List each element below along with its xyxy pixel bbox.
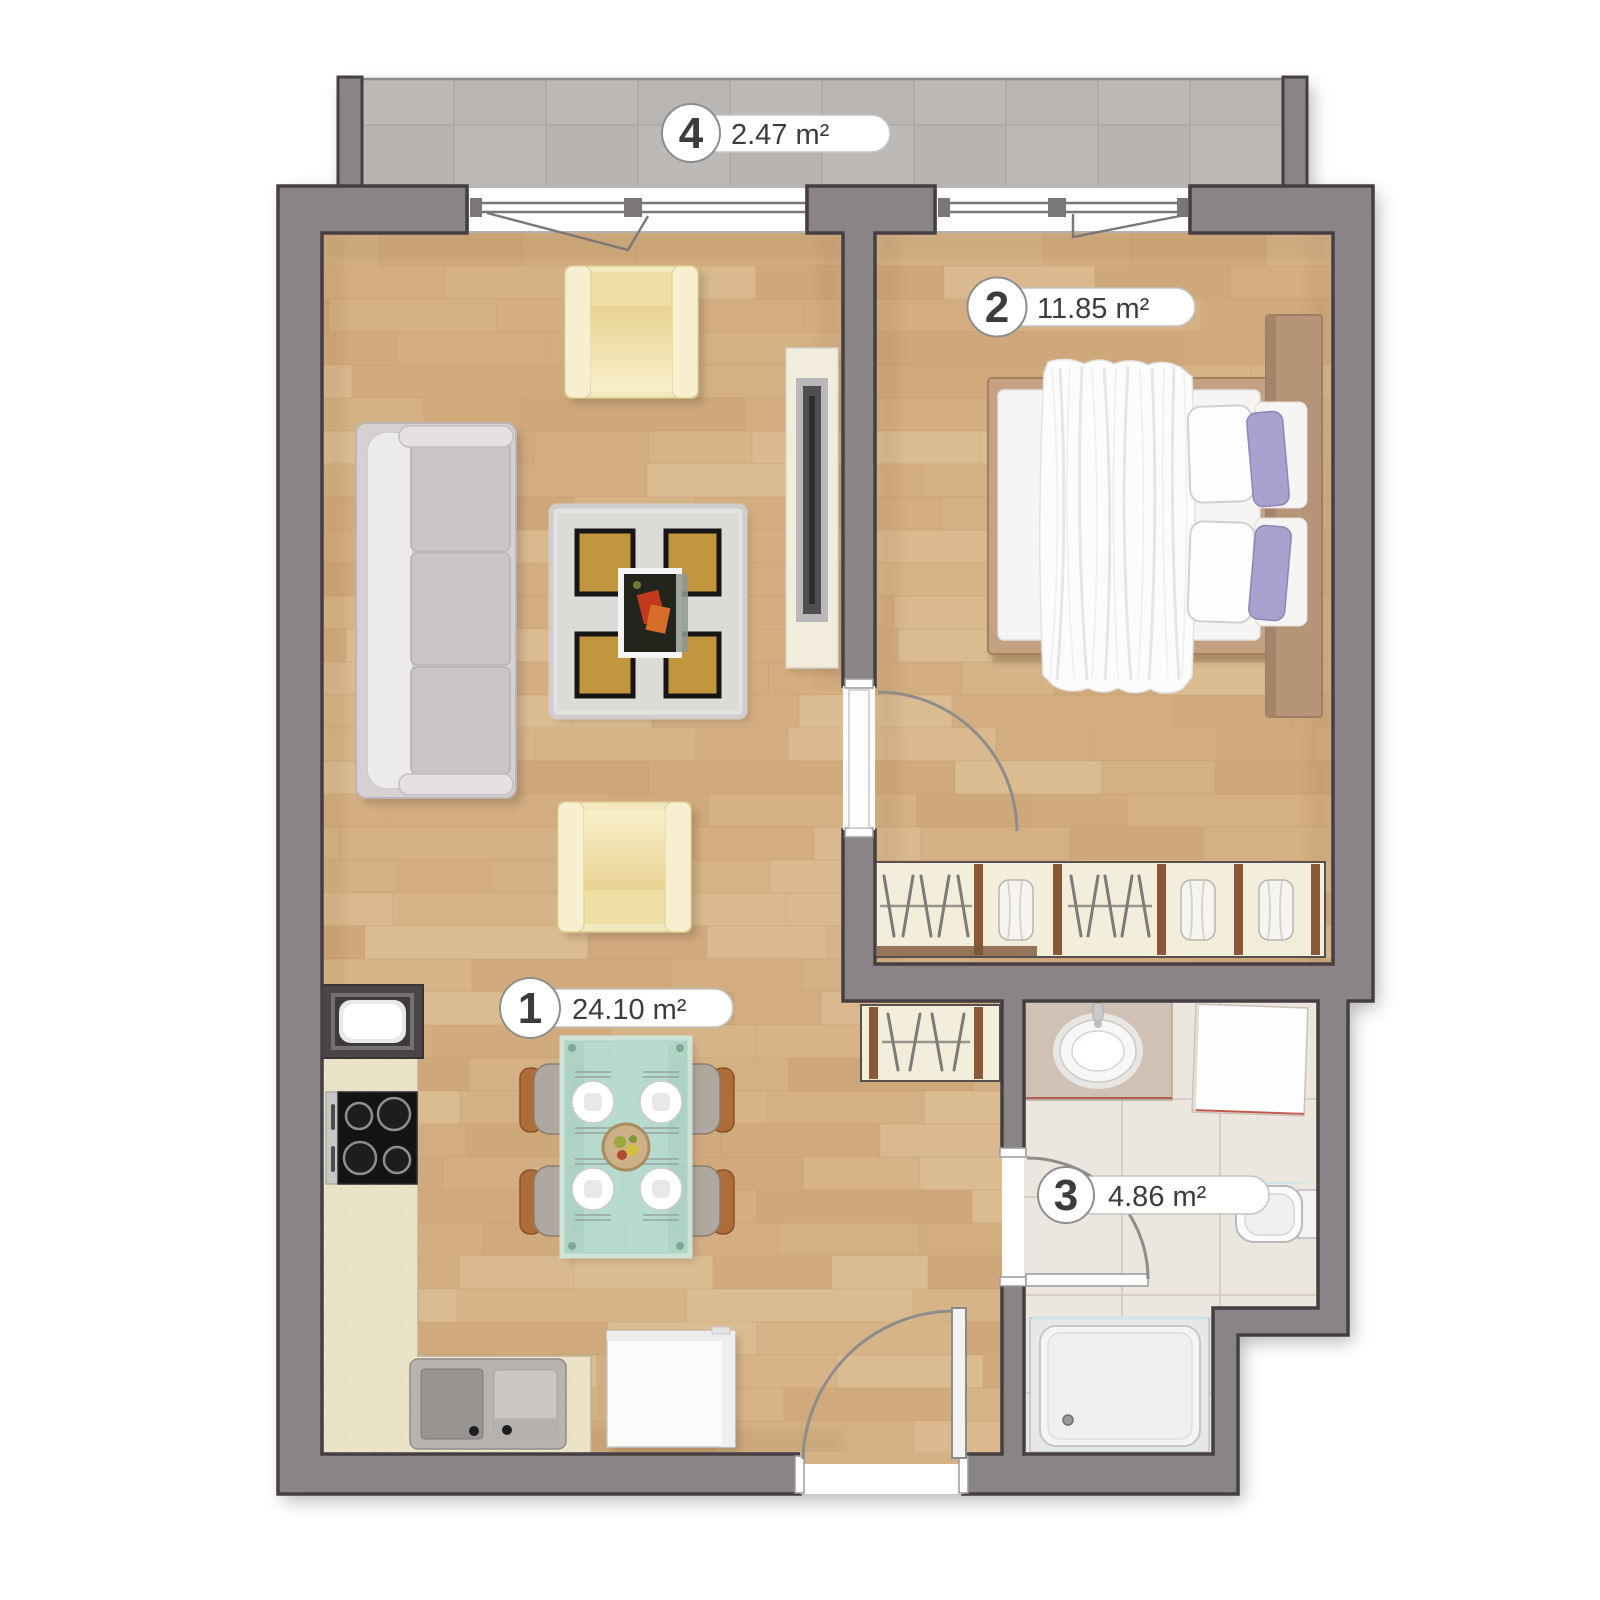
svg-text:11.85 m²: 11.85 m² <box>1037 293 1150 325</box>
svg-text:1: 1 <box>518 984 542 1033</box>
svg-text:2.47 m²: 2.47 m² <box>731 119 830 151</box>
svg-text:4: 4 <box>679 109 704 158</box>
svg-text:4.86 m²: 4.86 m² <box>1108 1181 1207 1213</box>
svg-text:24.10 m²: 24.10 m² <box>572 994 687 1026</box>
svg-text:3: 3 <box>1054 1171 1078 1220</box>
svg-text:2: 2 <box>985 283 1009 332</box>
